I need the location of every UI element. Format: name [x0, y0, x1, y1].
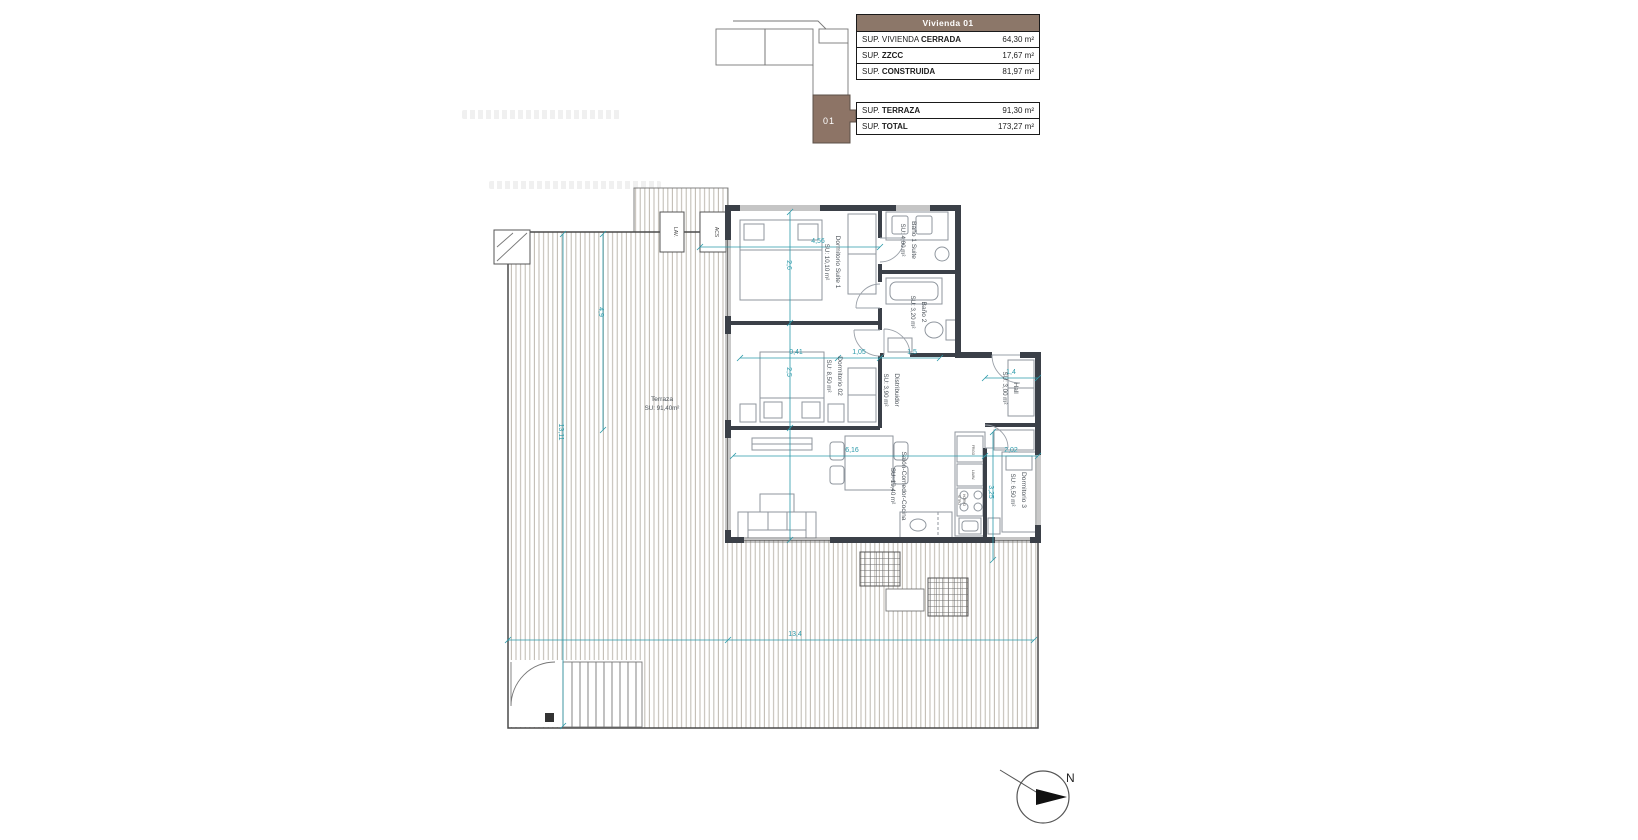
- dim-suite-height: 2,6: [785, 260, 792, 270]
- table-row: SUP. TOTAL 173,27 m²: [857, 119, 1039, 134]
- compass-line: [1000, 770, 1041, 795]
- dishwasher-label: LAVAV.: [971, 470, 975, 480]
- room-label-bath1: Baño 1 Suite: [910, 221, 917, 259]
- surface-tables: Vivienda 01 SUP. VIVIENDA CERRADA 64,30 …: [856, 14, 1040, 135]
- room-area-hall: SU: 3,00 m²: [1001, 371, 1008, 404]
- dim-total-width: 13,4: [788, 631, 802, 638]
- room-label-terrace: Terraza: [651, 396, 673, 403]
- column: [545, 713, 554, 722]
- room-area-dorm2: SU: 8,50 m²: [825, 359, 832, 392]
- dim-terrace-col-height: 4,9: [597, 307, 604, 317]
- dim-seg-c: 1,5: [907, 349, 917, 356]
- skylight-grid: [860, 552, 900, 586]
- floorplan-sheet: 01 Vivienda 01 SUP. VIVIENDA CERRADA 64,…: [0, 0, 1638, 840]
- fridge-label: FRIGO: [971, 445, 975, 456]
- hob-label: VITRO: [957, 495, 961, 505]
- room-area-bath1: SU: 4,00 m²: [899, 223, 906, 256]
- room-label-living: Salón-Comedor-Cocina: [900, 452, 907, 521]
- north-arrow-icon: [1036, 789, 1067, 805]
- oven-label: HORNO: [962, 494, 966, 506]
- watermark-text: [462, 110, 620, 119]
- corner-detail: [494, 230, 530, 264]
- keyplan-corridor: [813, 43, 848, 95]
- dim-dorm2-height: 2,5: [785, 367, 792, 377]
- area-value: 81,97 m²: [1002, 67, 1034, 76]
- dim-kitchen-height: 3,25: [987, 485, 994, 499]
- skylight-grid: [928, 578, 968, 616]
- north-compass: N: [985, 750, 1095, 835]
- room-label-hall: Hall: [1012, 382, 1019, 394]
- room-label-distribuidor: Distribuidor: [893, 373, 900, 407]
- roof-element: [886, 589, 924, 611]
- lav-label: LAV.: [672, 227, 678, 237]
- dim-dorm3-width: 2,02: [1004, 447, 1018, 454]
- dim-seg-a: 0,41: [789, 349, 803, 356]
- keyplan-block: [765, 29, 813, 65]
- room-label-dorm3: Dormitorio 3: [1020, 472, 1027, 508]
- area-value: 64,30 m²: [1002, 35, 1034, 44]
- room-area-distribuidor: SU: 3,90 m²: [882, 373, 889, 406]
- key-plan: 01: [660, 6, 860, 151]
- north-label: N: [1066, 771, 1075, 785]
- dim-seg-b: 1,05: [852, 349, 866, 356]
- acs-label: ACS: [713, 227, 719, 238]
- table-row: SUP. VIVIENDA CERRADA 64,30 m²: [857, 32, 1039, 48]
- keyplan-block: [819, 29, 848, 43]
- table-row: SUP. CONSTRUIDA 81,97 m²: [857, 64, 1039, 79]
- floor-plan: LAV. ACS: [480, 168, 1080, 748]
- stairs: [509, 660, 643, 727]
- dim-total-height: 13,11: [557, 424, 564, 441]
- room-area-bath2: SU: 3,20 m²: [909, 295, 916, 328]
- totals-table: SUP. TERRAZA 91,30 m² SUP. TOTAL 173,27 …: [856, 102, 1040, 135]
- keyplan-unit-label: 01: [823, 116, 835, 126]
- room-label-bath2: Baño 2: [920, 302, 927, 323]
- dim-living-width: 6,16: [845, 447, 859, 454]
- keyplan-roof-line: [733, 21, 826, 29]
- keyplan-block: [716, 29, 765, 65]
- room-area-dorm3: SU: 6,50 m²: [1009, 473, 1016, 506]
- table-row: SUP. ZZCC 17,67 m²: [857, 48, 1039, 64]
- room-area-suite1: SU: 10,10 m²: [823, 244, 830, 280]
- main-area-table: Vivienda 01 SUP. VIVIENDA CERRADA 64,30 …: [856, 14, 1040, 80]
- room-area-terrace: SU: 91,40m²: [645, 405, 680, 412]
- room-label-dorm2: Dormitorio 02: [836, 356, 843, 396]
- dim-suite-width: 4,56: [811, 238, 825, 245]
- room-area-living: SU: 19,40 m²: [889, 468, 896, 504]
- room-label-suite1: Dormitorio Suite 1: [834, 236, 841, 289]
- table-header: Vivienda 01: [857, 15, 1039, 32]
- furniture-suite1: [740, 214, 876, 300]
- area-value: 173,27 m²: [998, 122, 1034, 131]
- area-value: 91,30 m²: [1002, 106, 1034, 115]
- table-row: SUP. TERRAZA 91,30 m²: [857, 103, 1039, 119]
- area-value: 17,67 m²: [1002, 51, 1034, 60]
